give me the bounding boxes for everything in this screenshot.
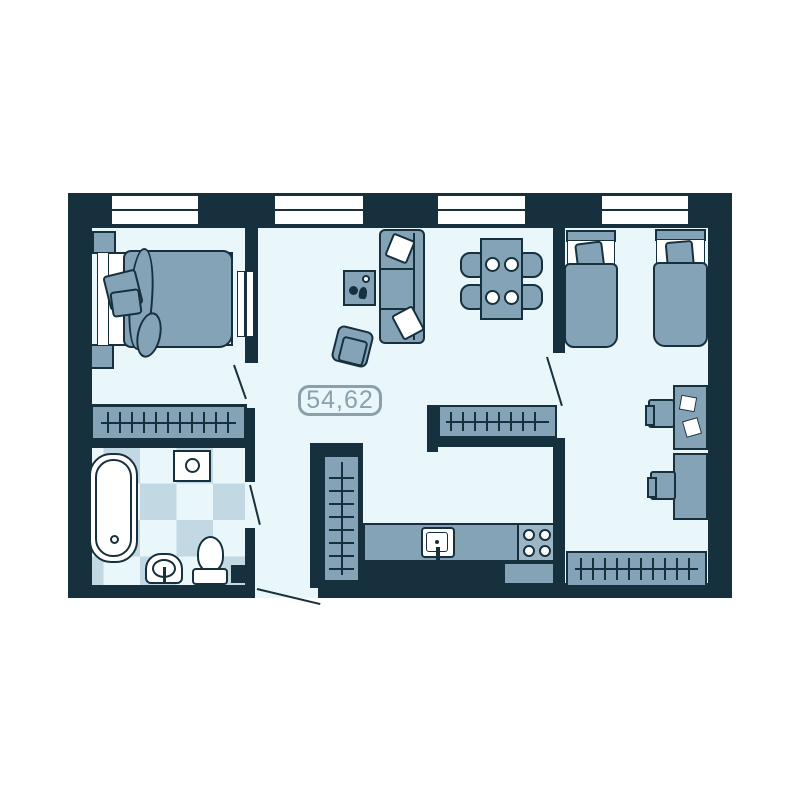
bedroom1-door-panel-right: [246, 271, 254, 337]
sofa-pillow-2: [391, 305, 425, 341]
living-room-wardrobe: [438, 405, 557, 438]
dining-chair-1: [460, 252, 482, 278]
single-bed-1-blanket: [564, 263, 618, 348]
bedroom1-door-panel-left: [237, 271, 245, 337]
toilet-bowl: [197, 536, 224, 572]
burner-3: [523, 545, 535, 557]
stove: [517, 525, 553, 560]
burner-2: [539, 529, 551, 541]
bedroom2-wardrobe: [566, 551, 707, 587]
dining-chair-2: [460, 284, 482, 310]
bed-pillow-2: [109, 288, 142, 318]
window-1: [112, 196, 198, 224]
desk-1: [673, 385, 708, 450]
hall-closet: [323, 455, 360, 582]
burner-4: [539, 545, 551, 557]
floor-plan: 54,62: [0, 0, 800, 800]
coffee-table: [343, 270, 376, 306]
coffee-table-vase: [358, 287, 368, 300]
plate-2: [504, 257, 519, 272]
plate-4: [504, 290, 519, 305]
window-2: [275, 196, 363, 224]
desk-chair-1-back: [645, 405, 655, 426]
washbasin: [173, 450, 211, 482]
desk-chair-2-back: [647, 477, 657, 498]
pedestal-sink-tap: [163, 567, 166, 583]
kitchen-counter: [363, 523, 555, 562]
outer-wall-bottom-left: [68, 585, 255, 598]
armchair-seat: [337, 335, 369, 367]
kitchen-sink: [421, 527, 455, 558]
desk-1-paper-1: [679, 395, 697, 413]
area-label: 54,62: [298, 385, 382, 416]
desk-chair-1: [648, 399, 675, 428]
sofa-cushion-line-1: [381, 268, 414, 270]
wall-kitchen-top-strip: [432, 438, 562, 447]
desk-2: [673, 453, 708, 520]
kitchen-counter-return: [503, 562, 557, 585]
bathtub-drain: [110, 535, 119, 544]
bathroom-duct: [231, 565, 248, 583]
area-value: 54,62: [306, 386, 374, 415]
kitchen-faucet: [436, 547, 440, 563]
single-bed-2-blanket: [653, 262, 708, 347]
kitchen-sink-drain: [435, 540, 439, 544]
washbasin-drain: [185, 458, 200, 473]
coffee-table-cup: [362, 275, 370, 283]
burner-1: [523, 529, 535, 541]
single-bed-1: [564, 230, 618, 348]
desk-1-paper-2: [682, 417, 702, 438]
sofa: [379, 229, 425, 344]
dining-chair-3: [521, 252, 543, 278]
coffee-table-bowl: [349, 286, 358, 295]
bedroom1-wardrobe: [90, 404, 247, 441]
toilet-base: [192, 568, 228, 585]
dining-chair-4: [521, 284, 543, 310]
plate-3: [485, 290, 500, 305]
kitchen-bottom-wall: [363, 562, 503, 585]
window-3: [438, 196, 525, 224]
single-bed-2: [653, 229, 708, 347]
dining-table: [480, 238, 523, 320]
plate-1: [485, 257, 500, 272]
wall-living-bedroom2-lower: [553, 438, 565, 587]
window-4: [602, 196, 688, 224]
pedestal-sink: [145, 553, 183, 584]
bathtub: [89, 453, 138, 563]
sofa-pillow-1: [384, 232, 416, 264]
desk-chair-2: [650, 471, 676, 500]
outer-wall-right: [708, 193, 732, 598]
double-bed: [95, 250, 235, 350]
toilet: [192, 536, 228, 586]
